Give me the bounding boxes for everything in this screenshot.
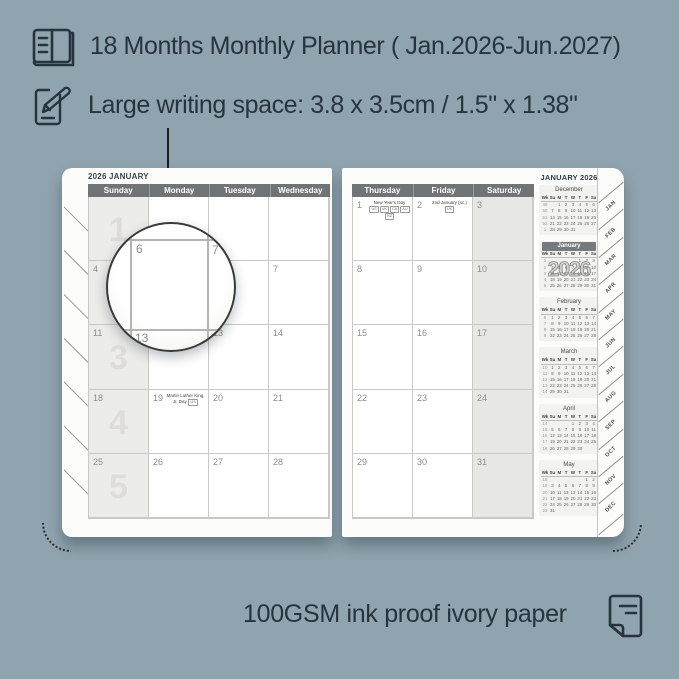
month-tab-label: JAN bbox=[605, 199, 618, 212]
country-tag: US bbox=[188, 399, 197, 406]
date-number: 20 bbox=[213, 393, 223, 403]
magnifier-circle: 6 7 13 bbox=[106, 222, 236, 352]
mini-col-header: Wk bbox=[541, 307, 549, 314]
mini-col-header: M bbox=[556, 414, 563, 421]
mini-calendar-january: JanuaryWkSuMTWTFSa1123245678910311121314… bbox=[539, 241, 599, 291]
calendar-cell: 15 bbox=[353, 325, 413, 389]
mini-col-header: T bbox=[563, 195, 570, 202]
mini-col-header: T bbox=[576, 251, 583, 258]
mini-col-header: Wk bbox=[541, 414, 549, 421]
holiday-note: Martin Luther King, Jr. Day US bbox=[164, 393, 207, 406]
date-number: 22 bbox=[357, 393, 367, 403]
date-number: 11 bbox=[93, 328, 102, 338]
day-header: Tuesday bbox=[209, 184, 270, 197]
calendar-cell: 17 bbox=[473, 325, 533, 389]
mini-date bbox=[590, 227, 597, 233]
mini-col-header: Su bbox=[549, 414, 556, 421]
magnified-date-6: 6 bbox=[136, 242, 143, 256]
mini-calendar-sidebar: JANUARY 2026 DecemberWkSuMTWTFSa49123456… bbox=[538, 173, 600, 533]
mini-calendar-name: April bbox=[541, 405, 597, 414]
mini-col-header: T bbox=[576, 307, 583, 314]
mini-calendar-stack: DecemberWkSuMTWTFSa491234565078910111213… bbox=[538, 185, 600, 516]
calendar-cell: 1New Year's Day USUKCAAUNZ bbox=[353, 197, 413, 261]
mini-col-header: F bbox=[583, 251, 590, 258]
day-header: Wednesday bbox=[270, 184, 331, 197]
calendar-cell: 22nd January (sc.) UK bbox=[413, 197, 473, 261]
calendar-cell: 23 bbox=[413, 390, 473, 454]
planner-book-icon bbox=[30, 25, 76, 67]
year-overlay: 2026 bbox=[548, 258, 591, 282]
mini-col-header: Su bbox=[549, 251, 556, 258]
date-number: 8 bbox=[357, 264, 362, 274]
month-tab-may: MAY bbox=[598, 302, 624, 329]
planner-left-page: 2026 JANUARY SundayMondayTuesdayWednesda… bbox=[62, 168, 332, 537]
mini-date: 30 bbox=[563, 227, 570, 233]
holiday-note: 2nd January (sc.) UK bbox=[428, 200, 471, 213]
month-tab-apr: APR bbox=[598, 274, 624, 301]
mini-date: 29 bbox=[576, 283, 583, 289]
holiday-note: New Year's Day USUKCAAUNZ bbox=[368, 200, 411, 220]
mini-col-header: W bbox=[570, 195, 577, 202]
mini-col-header: W bbox=[570, 307, 577, 314]
mini-date bbox=[556, 508, 563, 514]
date-number: 24 bbox=[477, 393, 487, 403]
month-tab-label: MAR bbox=[604, 253, 618, 267]
mini-date: 30 bbox=[556, 389, 563, 395]
calendar-cell: 24 bbox=[473, 390, 533, 454]
mini-date: 29 bbox=[556, 227, 563, 233]
month-tab-strip: JANFEBMARAPRMAYJUNJULAUGSEPOCTNOVDEC bbox=[597, 168, 624, 537]
date-number: 31 bbox=[477, 457, 487, 467]
calendar-cell: 20 bbox=[209, 390, 269, 454]
mini-date: 26 bbox=[549, 446, 556, 452]
mini-col-header: W bbox=[570, 414, 577, 421]
calendar-cell: 14 bbox=[269, 325, 329, 389]
mini-date: 29 bbox=[549, 389, 556, 395]
mini-col-header: Sa bbox=[590, 470, 597, 477]
country-tag: AU bbox=[400, 206, 409, 213]
calendar-cell: 10 bbox=[473, 261, 533, 325]
mini-date: 25 bbox=[570, 333, 577, 339]
month-tab-label: JUN bbox=[605, 336, 618, 349]
mini-date: 28 bbox=[563, 446, 570, 452]
writing-pencil-icon bbox=[30, 81, 74, 129]
mini-date bbox=[583, 227, 590, 233]
magnified-grid-line bbox=[130, 224, 132, 350]
mini-col-header: F bbox=[583, 470, 590, 477]
date-number: 1 bbox=[357, 200, 362, 210]
mini-col-header: M bbox=[556, 357, 563, 364]
calendar-cell: 418 bbox=[89, 390, 149, 454]
mini-col-header: T bbox=[576, 195, 583, 202]
month-tab-label: NOV bbox=[604, 473, 618, 487]
mini-date: 27 bbox=[563, 283, 570, 289]
calendar-cell: 16 bbox=[413, 325, 473, 389]
mini-col-header: Sa bbox=[590, 251, 597, 258]
mini-date bbox=[576, 508, 583, 514]
date-number: 2 bbox=[417, 200, 422, 210]
month-tab-nov: NOV bbox=[598, 466, 624, 493]
mini-calendar-february: FebruaryWkSuMTWTFSa612345677891011121314… bbox=[539, 297, 599, 341]
date-number: 9 bbox=[417, 264, 422, 274]
date-number: 16 bbox=[417, 328, 427, 338]
right-calendar: ThursdayFridaySaturday 1New Year's Day U… bbox=[352, 184, 534, 519]
magnified-date-13: 13 bbox=[135, 331, 148, 345]
mini-date: 25 bbox=[549, 283, 556, 289]
mini-calendar-grid: WkSuMTWTFSa10123456711891011121314121516… bbox=[541, 357, 597, 395]
week-number-watermark: 5 bbox=[89, 468, 148, 507]
calendar-cell: 3 bbox=[473, 197, 533, 261]
mini-date: 26 bbox=[556, 283, 563, 289]
mini-date: 31 bbox=[549, 508, 556, 514]
date-number: 25 bbox=[93, 457, 103, 467]
tab-strip-spacer bbox=[598, 168, 624, 192]
mini-col-header: W bbox=[570, 357, 577, 364]
mini-col-header: M bbox=[556, 251, 563, 258]
mini-col-header: W bbox=[570, 251, 577, 258]
mini-date bbox=[590, 389, 597, 395]
mini-date: 27 bbox=[583, 333, 590, 339]
mini-col-header: T bbox=[563, 307, 570, 314]
date-number: 18 bbox=[93, 393, 103, 403]
writing-space-text: Large writing space: 3.8 x 3.5cm / 1.5" … bbox=[88, 91, 578, 120]
date-number: 7 bbox=[273, 264, 278, 274]
mini-col-header: T bbox=[576, 357, 583, 364]
country-tag: CA bbox=[390, 206, 399, 213]
week-number-watermark: 4 bbox=[89, 404, 148, 443]
month-tab-label: AUG bbox=[604, 391, 618, 405]
calendar-cell: 30 bbox=[413, 454, 473, 518]
mini-date: 22 bbox=[549, 333, 556, 339]
calendar-cell: 525 bbox=[89, 454, 149, 518]
right-day-header-row: ThursdayFridaySaturday bbox=[352, 184, 534, 197]
mini-calendar-december: DecemberWkSuMTWTFSa491234565078910111213… bbox=[539, 185, 599, 235]
month-tab-label: JUL bbox=[605, 364, 617, 376]
week-number-watermark: 3 bbox=[89, 339, 148, 378]
mini-col-header: Wk bbox=[541, 251, 549, 258]
left-month-title: 2026 JANUARY bbox=[88, 172, 149, 181]
mini-col-header: Wk bbox=[541, 470, 549, 477]
calendar-cell: 8 bbox=[353, 261, 413, 325]
mini-date bbox=[563, 508, 570, 514]
mini-col-header: Sa bbox=[590, 307, 597, 314]
calendar-cell: 13 bbox=[209, 325, 269, 389]
mini-week-number: 14 bbox=[541, 389, 549, 395]
calendar-cell: 22 bbox=[353, 390, 413, 454]
month-tab-jul: JUL bbox=[598, 356, 624, 383]
mini-date: 31 bbox=[570, 227, 577, 233]
mini-col-header: M bbox=[556, 195, 563, 202]
month-tab-label: FEB bbox=[605, 227, 618, 240]
mini-calendar-grid: WkSuMTWTFSa14123415567891011161213141516… bbox=[541, 414, 597, 452]
mini-col-header: T bbox=[563, 470, 570, 477]
mini-col-header: T bbox=[576, 414, 583, 421]
mini-calendar-name: February bbox=[541, 298, 597, 307]
paper-feature-text: 100GSM ink proof ivory paper bbox=[243, 600, 567, 629]
mini-col-header: Wk bbox=[541, 195, 549, 202]
calendar-cell: 28 bbox=[269, 454, 329, 518]
mini-week-number: 1 bbox=[541, 227, 549, 233]
mini-date: 24 bbox=[563, 333, 570, 339]
country-tag: UK bbox=[445, 206, 454, 213]
feature-line-1: 18 Months Monthly Planner ( Jan.2026-Jun… bbox=[30, 25, 621, 67]
day-header: Saturday bbox=[473, 184, 534, 197]
mini-calendar-grid: WkSuMTWTFSa61234567789101112131481516171… bbox=[541, 307, 597, 339]
calendar-cell bbox=[269, 197, 329, 261]
mini-col-header: F bbox=[583, 414, 590, 421]
mini-col-header: Su bbox=[549, 195, 556, 202]
mini-col-header: Sa bbox=[590, 357, 597, 364]
date-number: 26 bbox=[153, 457, 163, 467]
calendar-cell: 29 bbox=[353, 454, 413, 518]
country-tag: UK bbox=[380, 206, 389, 213]
mini-date bbox=[583, 389, 590, 395]
mini-col-header: T bbox=[563, 357, 570, 364]
magnified-grid-line bbox=[108, 329, 234, 331]
mini-calendar-grid: WkSuMTWTFSa49123456507891011121351141516… bbox=[541, 195, 597, 233]
mini-col-header: Su bbox=[549, 357, 556, 364]
day-header: Monday bbox=[149, 184, 210, 197]
mini-date: 28 bbox=[549, 227, 556, 233]
mini-week-number: 9 bbox=[541, 333, 549, 339]
date-number: 27 bbox=[213, 457, 223, 467]
mini-col-header: Su bbox=[549, 307, 556, 314]
date-number: 29 bbox=[357, 457, 367, 467]
month-tab-label: MAY bbox=[604, 309, 617, 322]
product-image: 18 Months Monthly Planner ( Jan.2026-Jun… bbox=[0, 0, 679, 679]
date-number: 15 bbox=[357, 328, 367, 338]
planner-right-page: ThursdayFridaySaturday 1New Year's Day U… bbox=[342, 168, 624, 537]
date-number: 10 bbox=[477, 264, 487, 274]
month-tab-label: OCT bbox=[604, 446, 617, 459]
day-header: Friday bbox=[413, 184, 474, 197]
month-tab-mar: MAR bbox=[598, 247, 624, 274]
sidebar-month-title: JANUARY 2026 bbox=[538, 173, 600, 182]
mini-date: 31 bbox=[563, 389, 570, 395]
month-tab-jan: JAN bbox=[598, 192, 624, 219]
mini-col-header: T bbox=[563, 414, 570, 421]
mini-col-header: F bbox=[583, 307, 590, 314]
month-tab-label: APR bbox=[604, 281, 617, 294]
mini-date bbox=[576, 389, 583, 395]
mini-col-header: Sa bbox=[590, 195, 597, 202]
mini-date: 27 bbox=[556, 446, 563, 452]
calendar-cell: 27 bbox=[209, 454, 269, 518]
mini-date bbox=[590, 446, 597, 452]
mini-col-header: F bbox=[583, 357, 590, 364]
mini-date bbox=[570, 508, 577, 514]
date-number: 17 bbox=[477, 328, 487, 338]
left-edge-hatch bbox=[64, 192, 88, 513]
month-tab-label: SEP bbox=[605, 418, 618, 431]
month-tab-sep: SEP bbox=[598, 411, 624, 438]
mini-col-header: W bbox=[570, 470, 577, 477]
magnified-grid-line bbox=[207, 224, 209, 350]
magnified-date-7: 7 bbox=[212, 243, 219, 257]
date-number: 21 bbox=[273, 393, 283, 403]
calendar-cell: 26 bbox=[149, 454, 209, 518]
mini-date: 30 bbox=[583, 283, 590, 289]
mini-col-header: M bbox=[556, 307, 563, 314]
mini-date: 29 bbox=[570, 446, 577, 452]
mini-calendar-april: AprilWkSuMTWTFSa141234155678910111612131… bbox=[539, 404, 599, 454]
mini-calendar-name: March bbox=[541, 348, 597, 357]
mini-calendar-march: MarchWkSuMTWTFSa101234567118910111213141… bbox=[539, 347, 599, 397]
mini-date bbox=[570, 389, 577, 395]
date-number: 28 bbox=[273, 457, 283, 467]
month-tab-oct: OCT bbox=[598, 439, 624, 466]
calendar-cell: 19Martin Luther King, Jr. Day US bbox=[149, 390, 209, 454]
mini-date: 23 bbox=[556, 333, 563, 339]
date-number: 14 bbox=[273, 328, 283, 338]
planner-title-text: 18 Months Monthly Planner ( Jan.2026-Jun… bbox=[90, 32, 621, 61]
mini-col-header: Su bbox=[549, 470, 556, 477]
mini-date: 28 bbox=[590, 333, 597, 339]
magnified-grid-line bbox=[108, 239, 234, 241]
calendar-cell: 21 bbox=[269, 390, 329, 454]
mini-col-header: F bbox=[583, 195, 590, 202]
right-calendar-grid: 1New Year's Day USUKCAAUNZ22nd January (… bbox=[352, 197, 534, 519]
mini-week-number: 23 bbox=[541, 508, 549, 514]
country-tag: US bbox=[369, 206, 378, 213]
left-day-header-row: SundayMondayTuesdayWednesday bbox=[88, 184, 330, 197]
mini-date bbox=[576, 227, 583, 233]
mini-col-header: Sa bbox=[590, 414, 597, 421]
date-number: 4 bbox=[93, 264, 98, 274]
date-number: 30 bbox=[417, 457, 427, 467]
calendar-cell: 31 bbox=[473, 454, 533, 518]
mini-week-number: 18 bbox=[541, 446, 549, 452]
feature-line-2: Large writing space: 3.8 x 3.5cm / 1.5" … bbox=[30, 81, 578, 129]
calendar-cell: 9 bbox=[413, 261, 473, 325]
month-tab-aug: AUG bbox=[598, 384, 624, 411]
mini-date: 30 bbox=[576, 446, 583, 452]
mini-date bbox=[583, 446, 590, 452]
day-header: Thursday bbox=[352, 184, 413, 197]
mini-date: 31 bbox=[590, 283, 597, 289]
calendar-cell: 7 bbox=[269, 261, 329, 325]
date-number: 3 bbox=[477, 200, 482, 210]
mini-date: 26 bbox=[576, 333, 583, 339]
mini-date: 28 bbox=[570, 283, 577, 289]
mini-calendar-name: May bbox=[541, 461, 597, 470]
month-tab-feb: FEB bbox=[598, 219, 624, 246]
mini-week-number: 5 bbox=[541, 283, 549, 289]
mini-col-header: T bbox=[576, 470, 583, 477]
mini-calendar-name: January bbox=[542, 242, 596, 251]
country-tag: NZ bbox=[385, 213, 394, 220]
paper-sheet-icon bbox=[599, 591, 647, 643]
mini-col-header: Wk bbox=[541, 357, 549, 364]
mini-col-header: T bbox=[563, 251, 570, 258]
date-number: 23 bbox=[417, 393, 427, 403]
mini-col-header: M bbox=[556, 470, 563, 477]
mini-calendar-name: December bbox=[541, 186, 597, 195]
day-header: Sunday bbox=[88, 184, 149, 197]
date-number: 19 bbox=[153, 393, 163, 403]
month-tab-jun: JUN bbox=[598, 329, 624, 356]
